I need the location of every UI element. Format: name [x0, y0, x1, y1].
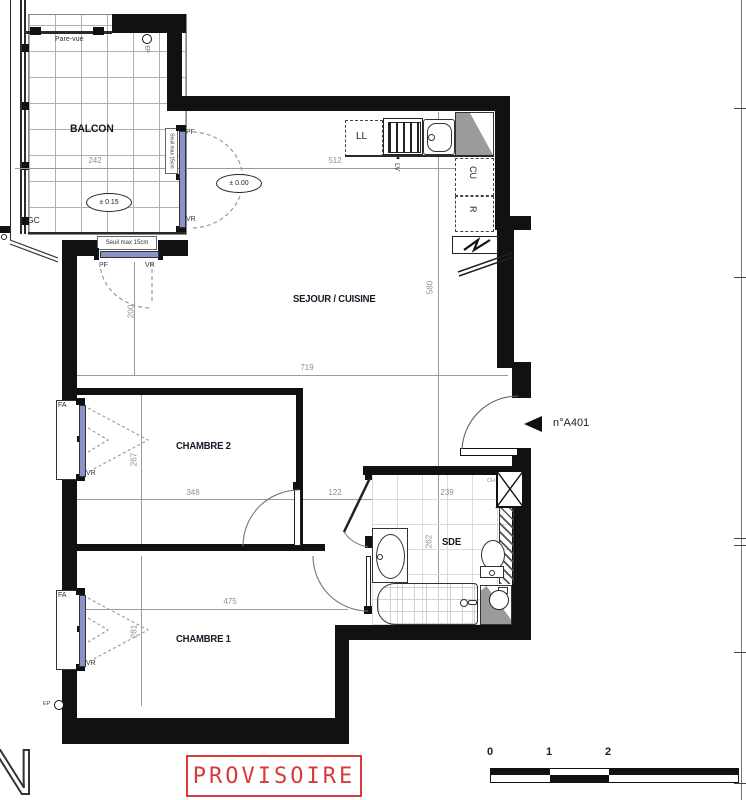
wall [62, 670, 77, 744]
scale-segment [491, 769, 550, 775]
edge-dot [1, 234, 7, 240]
vr-label: VR [186, 216, 196, 223]
washbasin-faucet-icon [377, 554, 383, 560]
partition [77, 544, 303, 551]
room-label-balcon: BALCON [70, 123, 114, 135]
scale-tick-0: 0 [483, 746, 497, 758]
reference-tick [734, 545, 746, 546]
edge-marker [0, 226, 10, 233]
gc-label: GC [27, 215, 40, 225]
level-marker-interior: ± 0.00 [216, 174, 262, 193]
chambre1-door-leaf [366, 556, 371, 612]
dim-sejour-w: 719 [292, 363, 322, 372]
chambre1-window-chevron [88, 618, 108, 642]
wall [512, 362, 531, 398]
chambre2-door-leaf [294, 488, 301, 546]
ch-label: CH [487, 478, 495, 484]
bathtub-mixer [468, 600, 477, 605]
scale-bar [490, 768, 739, 783]
balcony-door-glazing [179, 131, 186, 228]
entrance-door-arc [462, 396, 518, 449]
door-hinge [293, 482, 302, 490]
dim-sde-h: 262 [425, 527, 434, 557]
counter-edge [345, 155, 494, 157]
level-marker-balcony: ± 0.15 [86, 193, 132, 212]
north-letter: N [0, 736, 34, 800]
chambre2-window-chevron [88, 428, 108, 452]
dim-line [68, 375, 508, 376]
wall [112, 14, 186, 33]
scale-tick-1: 1 [542, 746, 556, 758]
balcony-edge [28, 232, 186, 234]
dishwasher-hatch [388, 122, 421, 153]
railing-post [22, 44, 29, 52]
reference-tick [734, 652, 746, 653]
railing-line [10, 0, 11, 240]
sde-door-leaf [344, 478, 370, 532]
reference-tick [734, 277, 746, 278]
vr-label: VR [86, 470, 96, 477]
dim-ch2-h: 267 [130, 445, 139, 475]
railing-cut-line [10, 240, 58, 262]
entrance-arrow-icon [524, 416, 542, 432]
cooker-label: CU [468, 166, 478, 179]
room-label-chambre2: CHAMBRE 2 [176, 441, 231, 452]
pf-label: PF [99, 262, 108, 269]
pf-label: PF [186, 129, 195, 136]
fridge-label: R [468, 206, 478, 213]
vr-label: VR [86, 660, 96, 667]
wc-button [489, 570, 495, 576]
dim-ch1-w: 475 [215, 597, 245, 606]
reference-tick [734, 538, 746, 539]
level-value: ± 0.15 [99, 199, 118, 206]
water-heater-tank [489, 590, 509, 610]
room-label-sde: SDE [442, 537, 461, 548]
floor-plan: EP CH LL ▲ LV [0, 0, 746, 800]
balcony-door-swing-arc [193, 132, 243, 180]
window-cap [94, 248, 99, 260]
wall [497, 228, 514, 368]
partition [70, 388, 303, 395]
fa-label: FA [58, 402, 67, 409]
chambre2-window-glazing [79, 405, 86, 477]
pare-vue-label: Pare-vue [55, 36, 83, 43]
dim-line [141, 556, 142, 706]
chambre1-window-chevron [88, 598, 148, 662]
seuil-label: Seuil max 15cm [169, 133, 175, 169]
wall [62, 240, 77, 402]
wall [495, 96, 510, 222]
sejour-window-glazing [100, 251, 159, 258]
door-hinge [364, 606, 372, 614]
room-label-sejour: SEJOUR / CUISINE [293, 294, 375, 305]
wall [178, 96, 510, 111]
level-value: ± 0.00 [229, 180, 248, 187]
dim-line [15, 168, 507, 169]
radiator [452, 236, 498, 254]
ep-label: EP [43, 701, 50, 707]
ep-label: EP [144, 45, 150, 52]
ep-downpipe-icon [142, 34, 152, 44]
railing-line [20, 0, 22, 234]
dim-ch1-h: 281 [130, 617, 139, 647]
wall [62, 718, 347, 744]
seuil-label-box: Seuil max 15cm [97, 236, 157, 250]
railing-post [22, 102, 29, 110]
washing-machine-label: LL [356, 131, 367, 142]
window-cap [76, 398, 85, 405]
partition [303, 544, 325, 551]
scale-segment [609, 769, 738, 775]
chambre1-door-arc [313, 556, 368, 611]
entrance-door-leaf [460, 448, 518, 456]
railing-line [24, 0, 26, 234]
shower-shaft [496, 470, 524, 508]
stamp-text: PROVISOIRE [193, 764, 355, 789]
pare-vue-fixing [93, 27, 104, 35]
chambre1-window-glazing [79, 595, 86, 667]
dim-hall-w: 122 [320, 488, 350, 497]
dim-sejour-h: 580 [426, 273, 435, 303]
scale-segment [550, 775, 609, 782]
dim-line [70, 609, 348, 610]
reference-tick [734, 108, 746, 109]
pare-vue-fixing [30, 27, 41, 35]
seuil-label: Seuil max 15cm [106, 240, 149, 246]
dim-window-h: 200 [127, 297, 136, 327]
reference-tick [734, 783, 746, 784]
seuil-label-box: Seuil max 15cm [165, 128, 178, 174]
wall [335, 625, 531, 640]
kitchen-faucet-icon [428, 134, 435, 141]
scale-tick-2: 2 [601, 746, 615, 758]
wall [62, 478, 77, 592]
dim-line [141, 390, 142, 548]
fa-label: FA [58, 592, 67, 599]
dishwasher-label: LV [393, 163, 400, 171]
dim-balcon-w: 242 [80, 156, 110, 165]
partition [365, 536, 372, 548]
room-label-chambre1: CHAMBRE 1 [176, 634, 231, 645]
chambre2-window-chevron [88, 408, 148, 472]
apartment-number: n°A401 [553, 417, 589, 429]
fridge-zone [455, 196, 494, 232]
vr-label: VR [145, 262, 155, 269]
dim-ch2-w: 348 [178, 488, 208, 497]
bathtub-faucet-icon [460, 599, 468, 607]
dim-kitchen-w: 512 [320, 156, 350, 165]
ep-downpipe-icon [54, 700, 64, 710]
wall [62, 240, 98, 256]
window-cap [76, 588, 85, 595]
reference-line [741, 0, 742, 800]
provisoire-stamp: PROVISOIRE [186, 755, 362, 797]
dim-sde-w: 239 [432, 488, 462, 497]
